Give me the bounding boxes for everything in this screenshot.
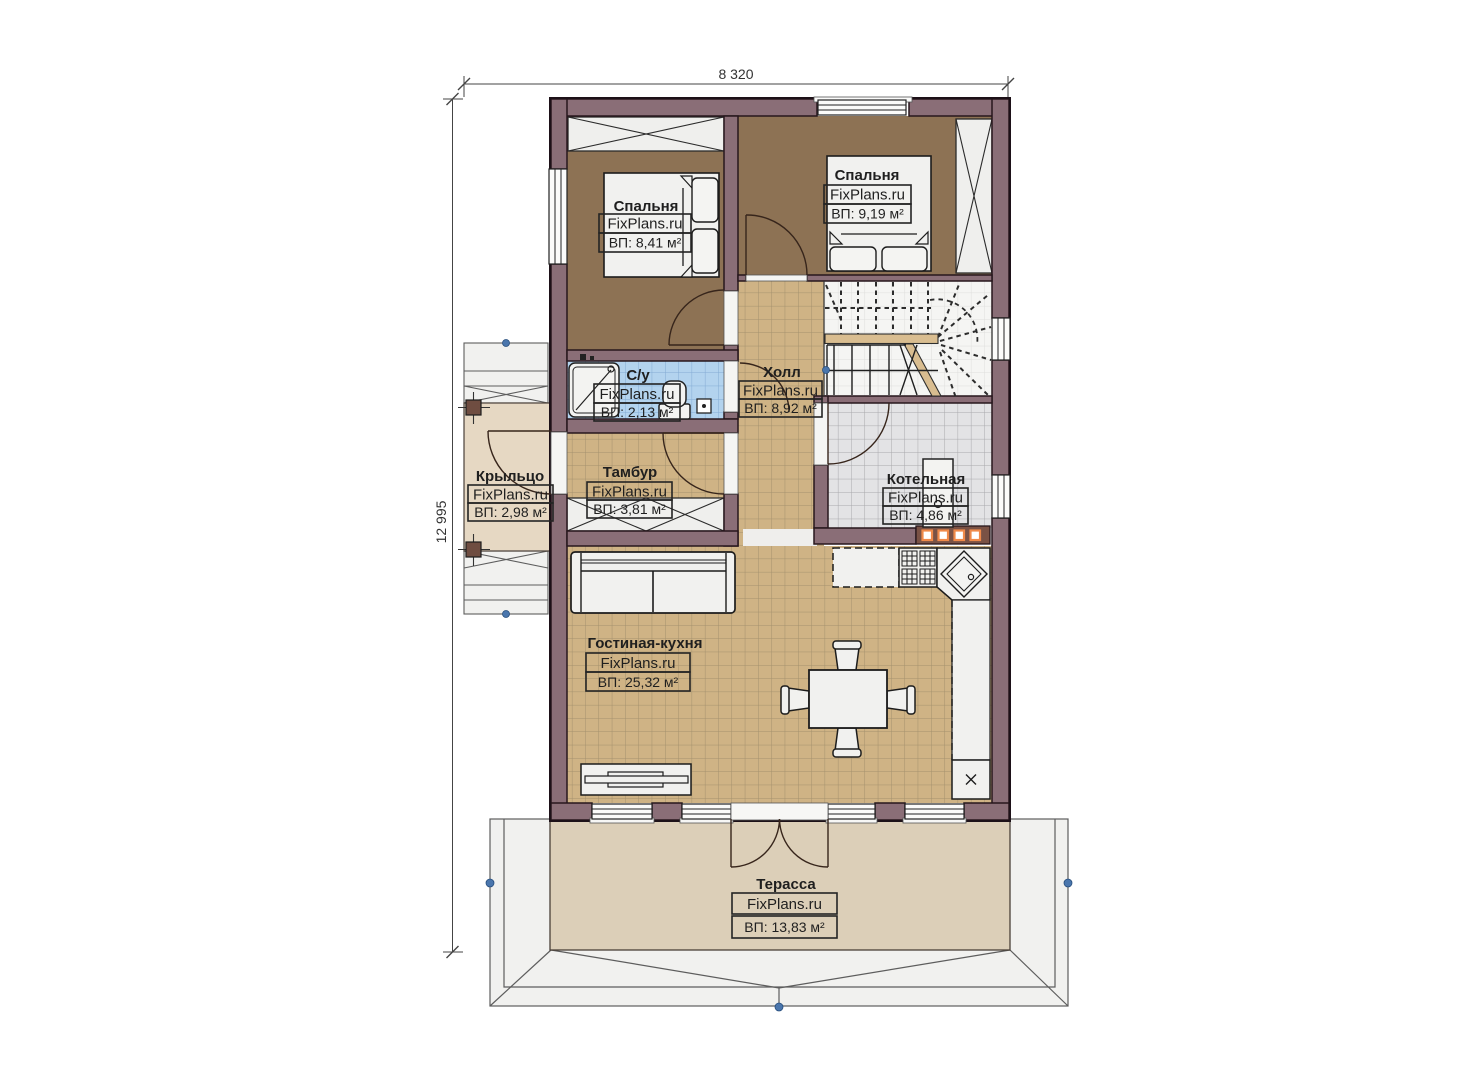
svg-text:ВП: 25,32 м²: ВП: 25,32 м² — [598, 674, 679, 690]
svg-text:Холл: Холл — [763, 364, 801, 381]
svg-text:Спальня: Спальня — [614, 198, 679, 215]
svg-text:Тамбур: Тамбур — [603, 464, 657, 481]
svg-text:ВП: 4,86 м²: ВП: 4,86 м² — [889, 507, 962, 523]
svg-text:FixPlans.ru: FixPlans.ru — [599, 386, 674, 403]
svg-text:Терасса: Терасса — [756, 876, 816, 893]
svg-text:ВП: 2,98 м²: ВП: 2,98 м² — [474, 504, 547, 520]
svg-text:ВП: 13,83 м²: ВП: 13,83 м² — [744, 919, 825, 935]
svg-text:FixPlans.ru: FixPlans.ru — [607, 216, 682, 233]
svg-text:FixPlans.ru: FixPlans.ru — [830, 187, 905, 204]
svg-text:Котельная: Котельная — [887, 471, 966, 488]
svg-text:FixPlans.ru: FixPlans.ru — [473, 487, 548, 504]
svg-text:ВП: 9,19 м²: ВП: 9,19 м² — [831, 206, 904, 222]
svg-text:FixPlans.ru: FixPlans.ru — [743, 383, 818, 400]
svg-text:ВП: 3,81 м²: ВП: 3,81 м² — [593, 501, 666, 517]
svg-text:FixPlans.ru: FixPlans.ru — [600, 655, 675, 672]
svg-text:С/у: С/у — [626, 367, 650, 384]
svg-text:Крыльцо: Крыльцо — [476, 468, 544, 485]
svg-text:Гостиная-кухня: Гостиная-кухня — [588, 635, 703, 652]
svg-text:FixPlans.ru: FixPlans.ru — [888, 490, 963, 507]
svg-text:ВП: 8,41 м²: ВП: 8,41 м² — [609, 235, 682, 251]
svg-text:12 995: 12 995 — [433, 500, 449, 543]
svg-text:8 320: 8 320 — [718, 66, 753, 82]
svg-text:Спальня: Спальня — [835, 167, 900, 184]
svg-text:ВП: 2,13 м²: ВП: 2,13 м² — [601, 404, 674, 420]
svg-text:FixPlans.ru: FixPlans.ru — [592, 484, 667, 501]
svg-text:FixPlans.ru: FixPlans.ru — [747, 896, 822, 913]
svg-text:ВП: 8,92 м²: ВП: 8,92 м² — [744, 400, 817, 416]
